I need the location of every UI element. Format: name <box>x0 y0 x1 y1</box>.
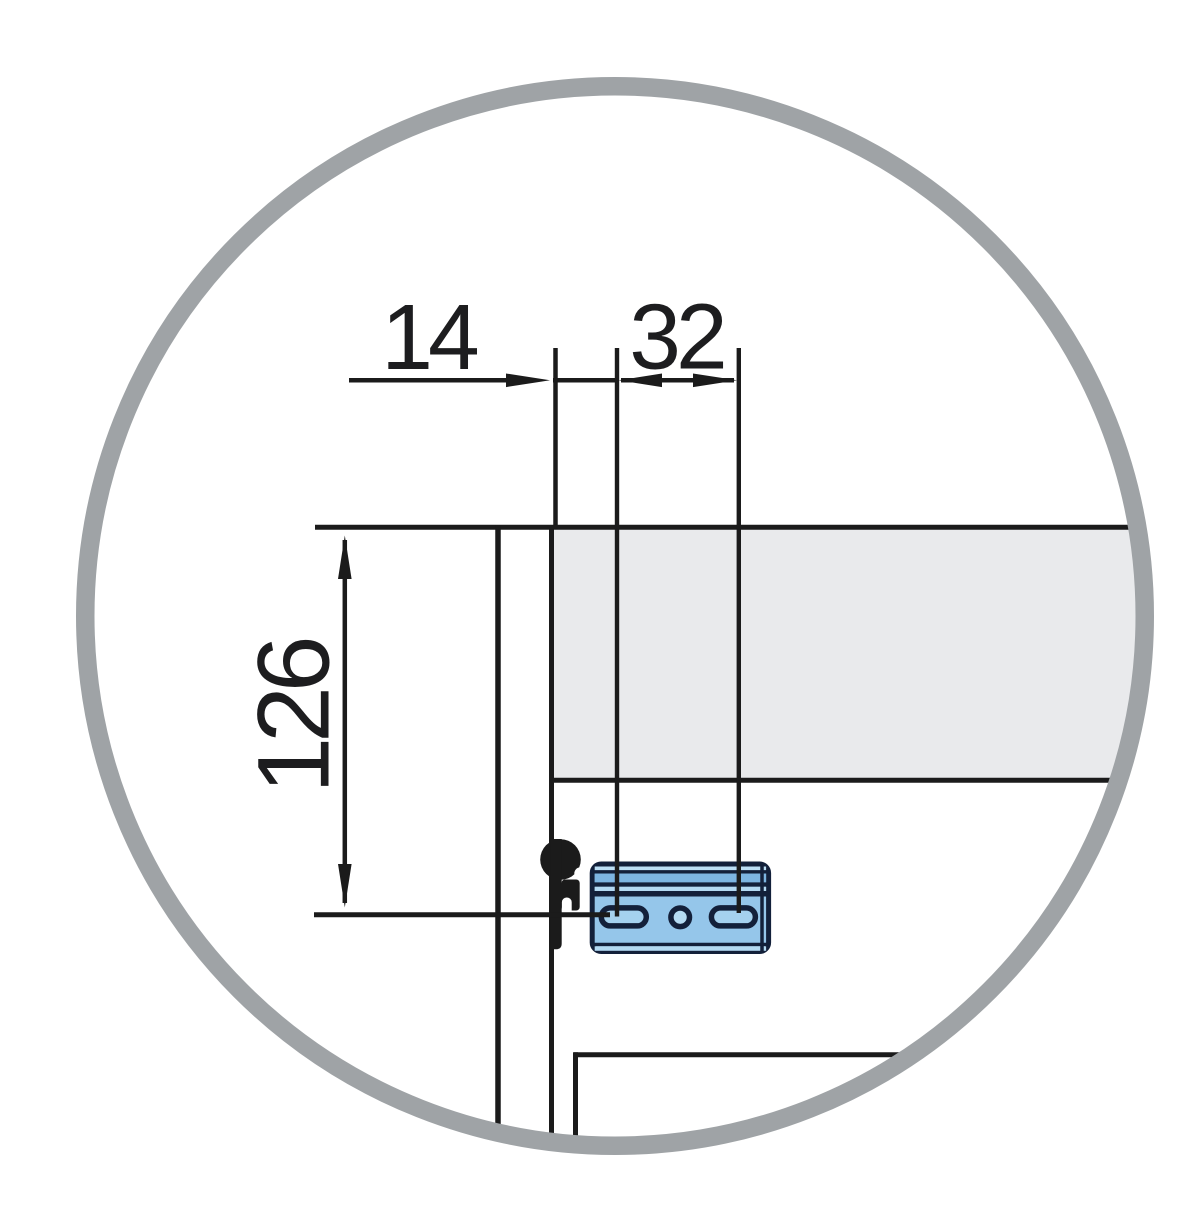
svg-text:14: 14 <box>381 285 477 389</box>
svg-text:32: 32 <box>629 285 724 389</box>
svg-text:126: 126 <box>237 639 351 793</box>
